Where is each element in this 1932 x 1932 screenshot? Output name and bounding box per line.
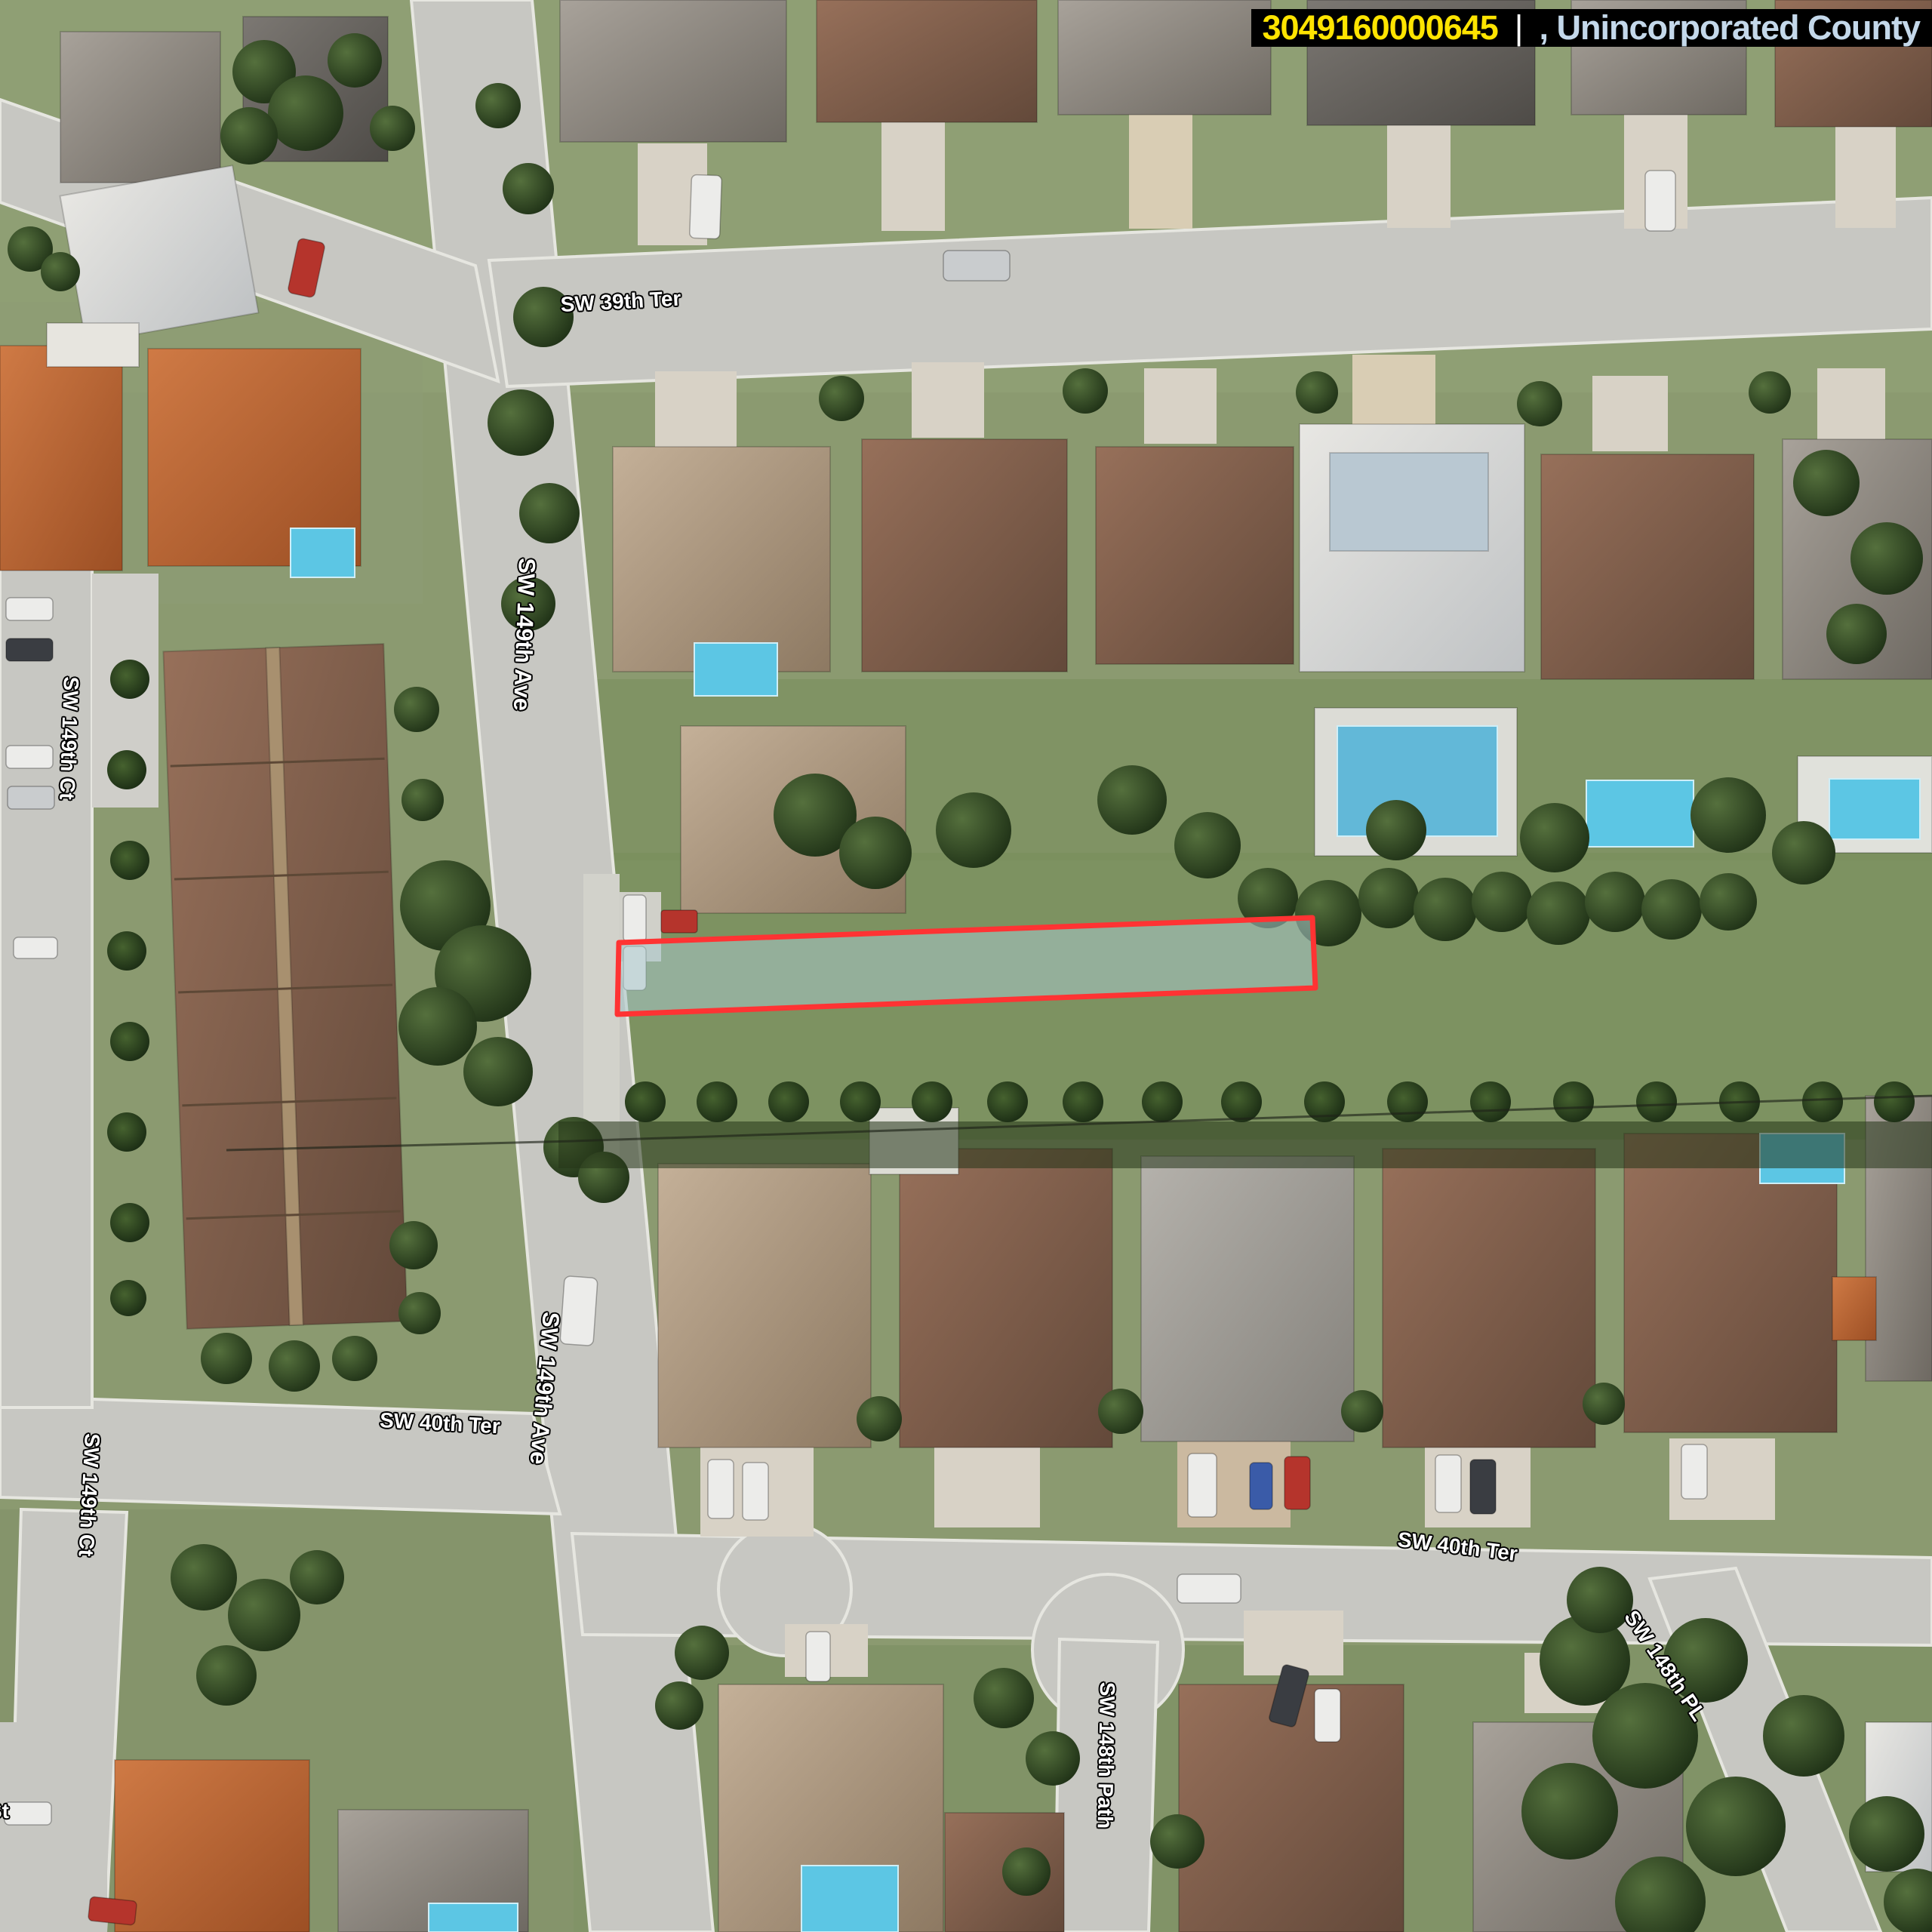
aerial-map[interactable] (0, 0, 1932, 1932)
header-separator: | (1515, 8, 1523, 48)
townhouse-row (163, 644, 407, 1329)
road-sw-148th-path (1055, 1639, 1158, 1932)
folio-number: 3049160000645 (1262, 8, 1497, 48)
road-sw-40th-ter-west (0, 1396, 560, 1514)
jurisdiction-label: , Unincorporated County (1540, 8, 1921, 48)
aerial-map-viewport[interactable]: SW 39th Ter SW 149th Ave SW 149th Ct SW … (0, 0, 1932, 1932)
folio-header-bar: 3049160000645 | , Unincorporated County (1251, 9, 1932, 47)
